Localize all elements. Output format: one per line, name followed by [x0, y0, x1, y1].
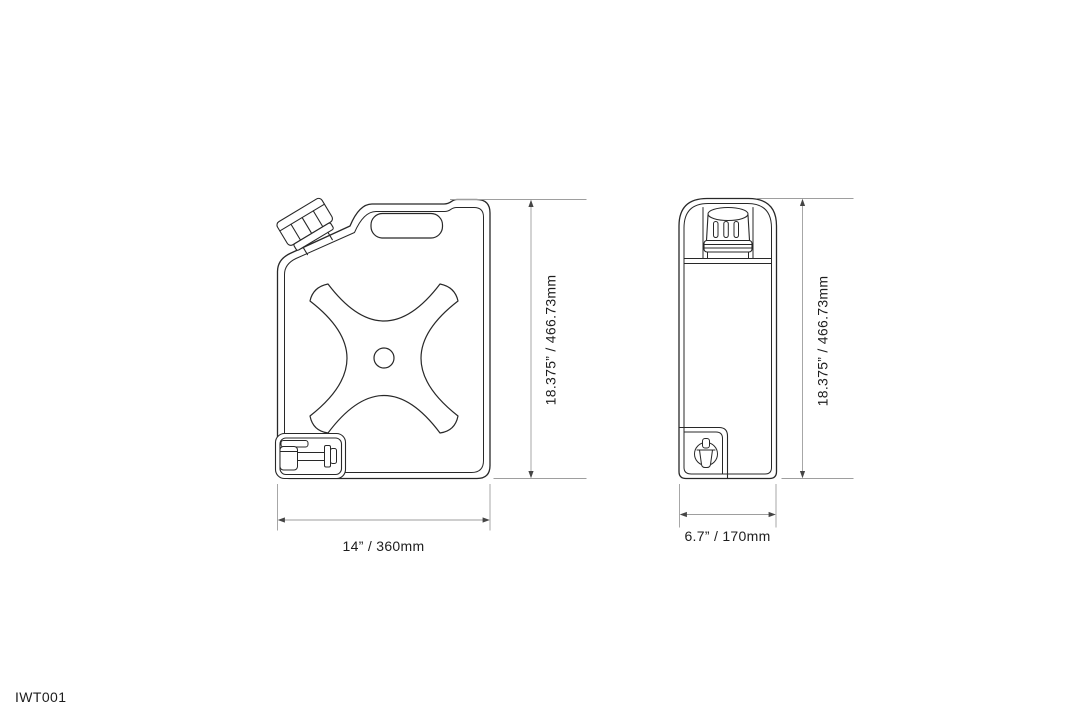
arrow-left — [680, 512, 687, 517]
arrow-up — [528, 200, 533, 207]
spigot-side — [695, 439, 718, 468]
side-view — [679, 199, 777, 479]
tap-tip — [331, 449, 337, 464]
cap-flange-side — [704, 241, 752, 253]
emboss-center-circle — [374, 348, 394, 368]
spigot-nozzle — [700, 450, 713, 468]
cap-top-ellipse — [708, 208, 748, 221]
front-height-label: 18.375” / 466.73mm — [543, 275, 559, 406]
extension-lines — [756, 199, 854, 479]
extension-lines — [450, 200, 587, 479]
arrow-up — [800, 199, 805, 206]
arrow-down — [528, 471, 533, 478]
dimension-front-width: 14” / 360mm — [278, 484, 491, 554]
handle-cutout — [371, 214, 443, 239]
cap-rib-slots — [714, 222, 739, 238]
arrow-down — [800, 471, 805, 478]
side-height-label: 18.375” / 466.73mm — [815, 276, 831, 407]
part-number: IWT001 — [15, 689, 66, 705]
extension-lines — [680, 484, 777, 528]
extension-lines — [278, 484, 491, 531]
dimension-side-height: 18.375” / 466.73mm — [756, 199, 854, 479]
spigot-stem — [703, 439, 710, 449]
cap-side — [704, 208, 752, 259]
side-width-label: 6.7” / 170mm — [684, 528, 770, 544]
dimension-side-width: 6.7” / 170mm — [680, 484, 777, 544]
front-view — [275, 197, 490, 479]
technical-drawing-sheet: 18.375” / 466.73mm 14” / 360mm 18.375” /… — [0, 0, 1080, 721]
dimension-front-height: 18.375” / 466.73mm — [450, 200, 587, 479]
arrow-left — [278, 517, 285, 522]
drawing-canvas: 18.375” / 466.73mm 14” / 360mm 18.375” /… — [0, 0, 1080, 721]
cap-front — [275, 197, 342, 261]
tap-body — [280, 447, 298, 471]
shoulder-lines — [684, 259, 772, 264]
tap-flange — [325, 446, 331, 468]
arrow-right — [483, 517, 490, 522]
front-width-label: 14” / 360mm — [343, 538, 425, 554]
cap-neck-side — [708, 252, 749, 259]
arrow-right — [769, 512, 776, 517]
